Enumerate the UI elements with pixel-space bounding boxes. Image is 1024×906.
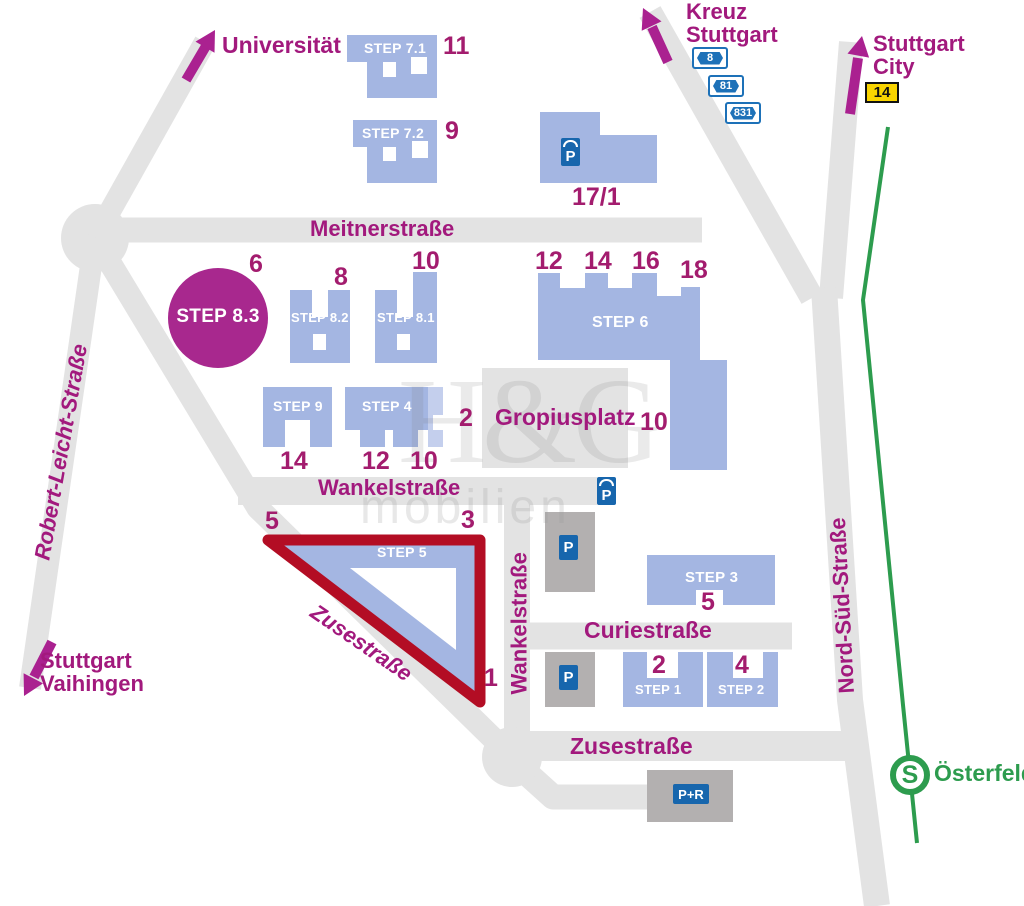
building-step-7-2-notch — [383, 147, 396, 161]
number-step-5-ne: 3 — [461, 507, 475, 533]
building-17-1 — [540, 112, 657, 183]
number-step-9: 14 — [280, 448, 308, 474]
label-step-4: STEP 4 — [362, 399, 412, 414]
label-step-7-2: STEP 7.2 — [362, 126, 424, 141]
building-step-8-2 — [290, 290, 350, 363]
building-step-8-1-courtyard — [397, 334, 410, 350]
parking-icon-lower-lot: P — [559, 665, 578, 690]
bus-line-number: 81 — [713, 80, 739, 93]
number-17-1: 17/1 — [572, 184, 621, 210]
label-step-8-1: STEP 8.1 — [377, 311, 435, 325]
parking-letter: P — [565, 148, 575, 165]
bus-line-badge-81: 81 — [708, 75, 744, 97]
parking-roof-mark — [599, 479, 614, 486]
label-wankelstrasse-horizontal: Wankelstraße — [318, 477, 460, 500]
number-step-3: 5 — [701, 589, 715, 615]
label-step-2: STEP 2 — [718, 683, 764, 697]
building-step-9 — [263, 387, 332, 447]
building-step-7-2-courtyard — [412, 141, 428, 158]
parking-icon-upper-lot: P — [559, 535, 578, 560]
label-step-3: STEP 3 — [685, 570, 738, 586]
covered-parking-icon-17-1: P — [561, 138, 580, 166]
number-step-5-nw: 5 — [265, 508, 279, 534]
bus-line-badge-8: 8 — [692, 47, 728, 69]
bus-line-badge-831: 831 — [725, 102, 761, 124]
label-city-line1: Stuttgart — [873, 33, 965, 56]
number-step-6-south: 10 — [640, 409, 668, 435]
label-universitaet: Universität — [222, 34, 341, 58]
park-and-ride-badge: P+R — [673, 784, 709, 804]
number-step-8-2: 8 — [334, 264, 348, 290]
building-step-7-1-notch — [383, 62, 396, 77]
road-to-stuttgart-city — [831, 42, 851, 298]
label-kreuz-line1: Kreuz — [686, 1, 778, 24]
number-step-4-left: 12 — [362, 448, 390, 474]
label-stuttgart-city: Stuttgart City — [873, 33, 965, 79]
number-step-8-1: 10 — [412, 248, 440, 274]
number-step-8-3: 6 — [249, 251, 263, 277]
label-step-9: STEP 9 — [273, 399, 323, 414]
number-step-6-18: 18 — [680, 257, 708, 283]
label-vaihingen-line2: Vaihingen — [40, 673, 144, 696]
road-junction-blob — [482, 727, 542, 787]
number-step-5-se: 1 — [484, 665, 498, 691]
label-step-6: STEP 6 — [592, 315, 649, 332]
building-step-8-2-courtyard — [313, 334, 326, 350]
parking-letter: P — [601, 487, 611, 504]
parking-letter: P — [563, 669, 573, 686]
parking-roof-mark — [563, 140, 578, 147]
label-step-1: STEP 1 — [635, 683, 681, 697]
number-step-7-2: 9 — [445, 118, 459, 144]
line-14-badge: 14 — [865, 82, 899, 103]
road-to-kreuz-stuttgart — [650, 12, 812, 298]
label-vaihingen-line1: Stuttgart — [40, 650, 144, 673]
label-curiestrasse: Curiestraße — [584, 619, 712, 643]
number-step-6-14: 14 — [584, 248, 612, 274]
label-kreuz-stuttgart: Kreuz Stuttgart — [686, 1, 778, 47]
sbahn-line — [863, 127, 917, 843]
label-step-8-3: STEP 8.3 — [170, 307, 266, 327]
number-step-7-1: 11 — [443, 33, 469, 59]
site-map: H&G mobilien Universität Kreuz Stuttgart… — [0, 0, 1024, 906]
number-step-4-right: 10 — [410, 448, 438, 474]
sbahn-logo: S — [890, 755, 930, 795]
number-step-2: 4 — [735, 652, 749, 678]
number-step-6-12: 12 — [535, 248, 563, 274]
label-meitnerstrasse: Meitnerstraße — [310, 218, 454, 241]
label-step-7-1: STEP 7.1 — [364, 41, 426, 56]
label-step-5: STEP 5 — [377, 545, 427, 560]
covered-parking-icon-gropiusplatz: P — [597, 477, 616, 505]
parking-letter: P — [563, 539, 573, 556]
bus-line-number: 8 — [697, 52, 723, 65]
label-step-8-2: STEP 8.2 — [291, 311, 349, 325]
number-step-6-16: 16 — [632, 248, 660, 274]
label-gropiusplatz: Gropiusplatz — [495, 406, 636, 430]
number-step-1: 2 — [652, 652, 666, 678]
label-stuttgart-vaihingen: Stuttgart Vaihingen — [40, 650, 144, 696]
label-wankelstrasse-vertical: Wankelstraße — [509, 560, 532, 694]
label-zusestrasse-horizontal: Zusestraße — [570, 735, 693, 759]
label-kreuz-line2: Stuttgart — [686, 24, 778, 47]
bus-line-number: 831 — [730, 107, 756, 120]
label-city-line2: City — [873, 56, 965, 79]
number-step-4-east: 2 — [459, 405, 473, 431]
label-oesterfeld-station: Österfeld — [934, 762, 1024, 786]
building-step-7-1-courtyard — [411, 57, 427, 74]
